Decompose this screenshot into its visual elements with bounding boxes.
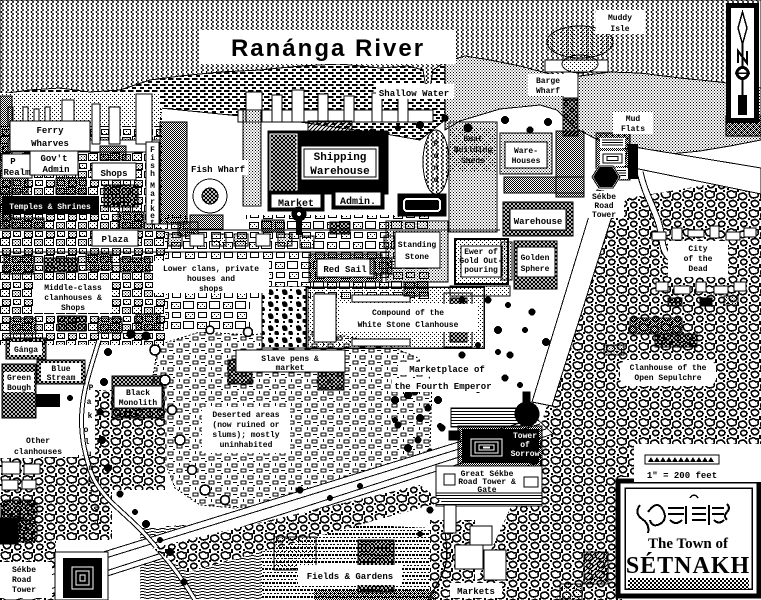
- svg-text:clanhouses &: clanhouses &: [44, 294, 102, 303]
- svg-text:Admin: Admin: [42, 165, 69, 175]
- svg-text:Compound of the: Compound of the: [372, 309, 444, 318]
- svg-text:The Town of: The Town of: [648, 536, 729, 552]
- svg-text:Gov't: Gov't: [40, 154, 67, 164]
- svg-text:Middle-class: Middle-class: [44, 284, 102, 293]
- svg-text:Shipping: Shipping: [314, 152, 367, 164]
- svg-text:n: n: [434, 164, 439, 173]
- svg-text:Sheds: Sheds: [461, 157, 485, 166]
- svg-text:a: a: [87, 398, 92, 407]
- svg-text:(now ruined or: (now ruined or: [212, 421, 279, 430]
- svg-text:Monolith: Monolith: [119, 399, 158, 408]
- svg-text:Lower clans, private: Lower clans, private: [163, 265, 259, 274]
- svg-text:Boat: Boat: [463, 135, 482, 144]
- svg-text:Gánga: Gánga: [14, 346, 38, 355]
- svg-text:Black: Black: [126, 389, 150, 398]
- svg-text:l: l: [85, 438, 90, 447]
- svg-text:Clanhouse of the: Clanhouse of the: [630, 364, 707, 373]
- svg-text:SÉTNAKH: SÉTNAKH: [626, 553, 750, 579]
- svg-text:Deserted areas: Deserted areas: [212, 411, 279, 420]
- svg-text:1" = 200 feet: 1" = 200 feet: [647, 471, 717, 481]
- svg-text:White Stone Clanhouse: White Stone Clanhouse: [358, 321, 459, 330]
- svg-text:Wharves: Wharves: [31, 139, 69, 149]
- svg-text:o: o: [434, 152, 439, 161]
- svg-text:Flats: Flats: [621, 125, 645, 134]
- svg-text:Fields & Gardens: Fields & Gardens: [307, 572, 393, 582]
- svg-text:Tower: Tower: [513, 432, 537, 441]
- svg-text:Ewer of: Ewer of: [464, 248, 498, 257]
- svg-text:d: d: [434, 176, 439, 185]
- svg-text:e: e: [87, 478, 92, 487]
- svg-text:of: of: [520, 441, 530, 450]
- svg-text:Fish Wharf: Fish Wharf: [191, 165, 245, 175]
- svg-text:m: m: [89, 464, 94, 473]
- svg-text:Warehouse: Warehouse: [310, 166, 370, 178]
- svg-text:h: h: [150, 170, 155, 179]
- svg-text:uninhabited: uninhabited: [220, 441, 273, 450]
- svg-text:City: City: [688, 245, 707, 254]
- svg-text:Tower: Tower: [592, 211, 616, 220]
- svg-text:market: market: [276, 364, 305, 373]
- svg-text:Golden: Golden: [521, 254, 550, 263]
- svg-text:Markets: Markets: [457, 587, 495, 597]
- svg-text:Dead: Dead: [688, 265, 707, 274]
- svg-text:Open Sepulchre: Open Sepulchre: [634, 374, 701, 383]
- svg-text:Houses: Houses: [512, 157, 541, 166]
- svg-text:Sékbe: Sékbe: [12, 566, 36, 575]
- svg-text:Barge: Barge: [536, 77, 560, 86]
- svg-text:Building: Building: [454, 146, 493, 155]
- svg-text:Shallow Water: Shallow Water: [379, 89, 449, 99]
- svg-text:Ware-: Ware-: [514, 147, 538, 156]
- svg-text:Isle: Isle: [610, 25, 629, 34]
- svg-text:Mud: Mud: [626, 115, 641, 124]
- svg-text:Stream: Stream: [47, 374, 76, 383]
- svg-text:Marketplace of: Marketplace of: [409, 365, 485, 375]
- svg-text:Shops: Shops: [61, 304, 85, 313]
- svg-text:the Fourth Emperor: the Fourth Emperor: [394, 382, 491, 392]
- svg-text:Sékbe: Sékbe: [592, 193, 616, 202]
- svg-text:P: P: [89, 384, 94, 393]
- svg-text:Gate: Gate: [477, 486, 496, 495]
- svg-text:Market: Market: [278, 198, 314, 210]
- svg-text:Shops: Shops: [100, 169, 127, 179]
- svg-text:P: P: [434, 140, 439, 149]
- svg-text:pouring: pouring: [464, 266, 498, 275]
- svg-text:P: P: [10, 157, 16, 167]
- svg-text:Red Sail: Red Sail: [323, 265, 367, 275]
- svg-text:Sphere: Sphere: [521, 265, 550, 274]
- svg-text:S: S: [94, 506, 99, 515]
- svg-text:Bough: Bough: [7, 384, 31, 393]
- svg-text:Warehouse: Warehouse: [514, 217, 563, 227]
- svg-text:Blue: Blue: [51, 365, 70, 374]
- svg-text:Ranánga River: Ranánga River: [231, 35, 425, 62]
- svg-text:Realm: Realm: [3, 168, 31, 178]
- svg-text:of the: of the: [684, 255, 713, 264]
- svg-text:slums); mostly: slums); mostly: [212, 431, 279, 440]
- svg-text:l: l: [89, 490, 94, 499]
- svg-text:Wharf: Wharf: [536, 87, 560, 96]
- svg-text:Road: Road: [12, 576, 31, 585]
- svg-text:Green: Green: [7, 374, 31, 383]
- svg-text:clanhouses: clanhouses: [14, 448, 62, 457]
- svg-text:Other: Other: [26, 437, 50, 446]
- svg-text:Tower: Tower: [12, 586, 36, 595]
- svg-text:t: t: [150, 219, 155, 228]
- svg-text:Slave pens &: Slave pens &: [261, 355, 319, 364]
- svg-text:Road: Road: [594, 202, 613, 211]
- svg-text:Stone: Stone: [405, 253, 429, 262]
- svg-text:Plaza: Plaza: [101, 235, 129, 245]
- svg-text:t: t: [96, 518, 101, 527]
- svg-text:Temples & Shrines: Temples & Shrines: [9, 203, 91, 212]
- svg-text:u: u: [87, 450, 92, 459]
- svg-text:houses and: houses and: [187, 275, 235, 284]
- svg-text:Admin.: Admin.: [340, 196, 376, 208]
- svg-text:Ferry: Ferry: [36, 126, 64, 136]
- svg-text:Gold Out-: Gold Out-: [459, 257, 502, 266]
- svg-text:Muddy: Muddy: [608, 14, 632, 23]
- svg-text:Sorrow: Sorrow: [511, 450, 540, 459]
- svg-text:shops: shops: [199, 285, 223, 294]
- svg-text:o: o: [84, 426, 89, 435]
- svg-text:k: k: [88, 412, 93, 421]
- svg-text:Standing: Standing: [398, 241, 437, 250]
